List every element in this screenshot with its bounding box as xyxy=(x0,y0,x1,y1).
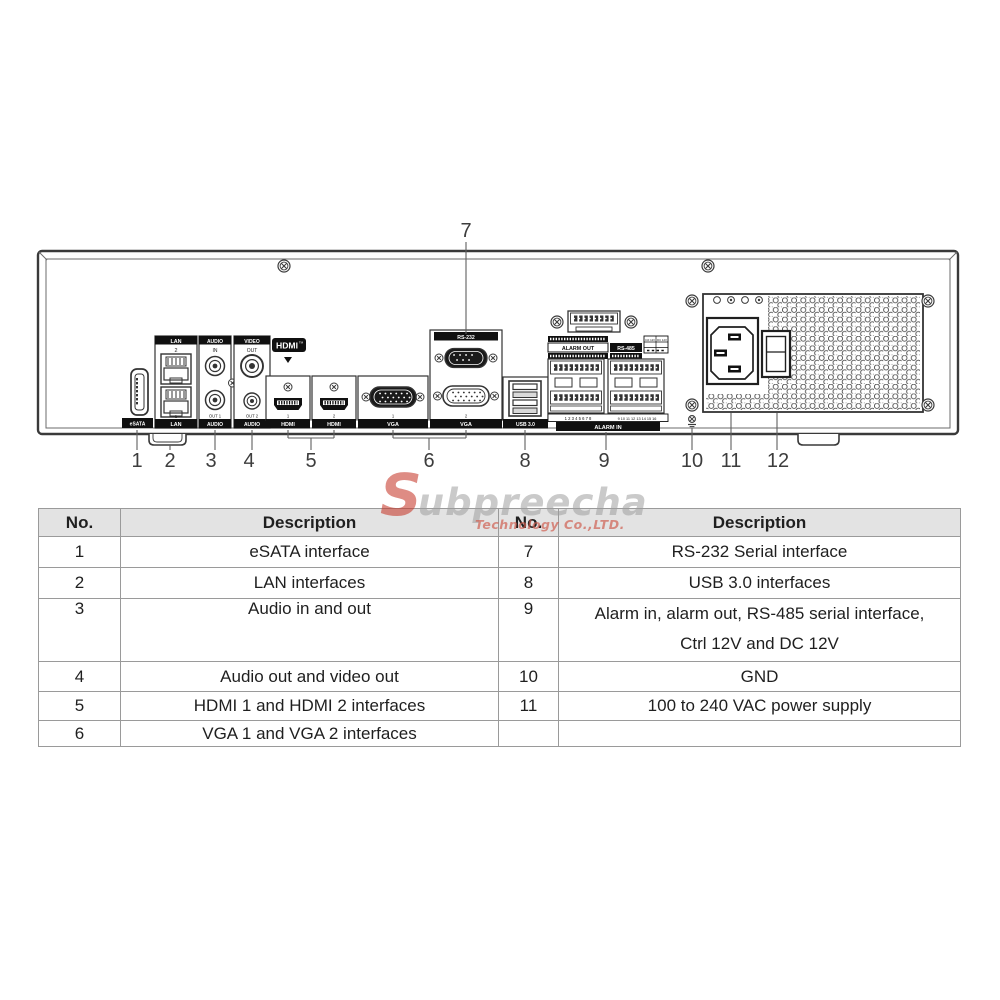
hdmi-logo-tm: TM xyxy=(299,341,304,345)
cell-desc: VGA 1 and VGA 2 interfaces xyxy=(121,721,499,747)
callout-2: 2 xyxy=(164,450,175,472)
rj45-port-2 xyxy=(161,354,191,384)
vga1-port: 1 VGA xyxy=(358,376,428,429)
cell-no xyxy=(499,721,559,747)
cell-desc: Alarm in, alarm out, RS-485 serial inter… xyxy=(559,599,961,662)
rs232-label: RS-232 xyxy=(457,335,475,341)
lan-ports: LAN 2 1 LAN xyxy=(155,336,197,429)
plate-screw-tl-icon xyxy=(686,295,698,307)
cell-desc: eSATA interface xyxy=(121,537,499,568)
gnd-terminal xyxy=(688,416,696,427)
hdmi2-screw-icon xyxy=(330,383,338,391)
audio-ports: AUDIO IN OUT 1 AUDIO xyxy=(199,336,237,429)
power-switch xyxy=(762,331,790,377)
cell-no: 1 xyxy=(39,537,121,568)
vga1-label: VGA xyxy=(387,422,399,428)
callout-10: 10 xyxy=(681,450,703,472)
alarm-in-nums-right: 9 10 11 12 13 14 15 16 xyxy=(618,417,657,421)
audio-out2-rca xyxy=(244,393,260,409)
cell-desc: Audio in and out xyxy=(121,599,499,662)
cell-desc: USB 3.0 interfaces xyxy=(559,568,961,599)
cell-no: 4 xyxy=(39,662,121,692)
table-row: 3 Audio in and out 9 Alarm in, alarm out… xyxy=(39,599,961,662)
alarm-in-nums-left: 1 2 3 4 5 6 7 8 xyxy=(565,416,592,421)
callout-4: 4 xyxy=(243,450,254,472)
audio-out1-label: OUT 1 xyxy=(209,414,222,419)
hdmi-logo-text: HDMI xyxy=(276,341,298,351)
audio-top-label: AUDIO xyxy=(207,339,223,345)
video-out-bnc xyxy=(241,355,263,377)
cell-no: 2 xyxy=(39,568,121,599)
cell-desc: HDMI 1 and HDMI 2 interfaces xyxy=(121,692,499,721)
cell-no: 10 xyxy=(499,662,559,692)
lan-top-label: LAN xyxy=(170,339,181,345)
video-top-label: VIDEO xyxy=(244,339,260,345)
callout-12: 12 xyxy=(767,450,789,472)
callout-3: 3 xyxy=(205,450,216,472)
audio-out-rca xyxy=(206,391,225,410)
rear-panel-diagram: eSATA LAN 2 1 LAN AUDIO IN xyxy=(0,0,1000,480)
hdmi2-label: HDMI xyxy=(327,422,341,428)
alarm-out-terminal xyxy=(568,311,620,332)
ctrl12v-label: Ctrl 12V xyxy=(645,338,655,342)
lan-top-num: 2 xyxy=(175,348,178,354)
callout-11: 11 xyxy=(721,450,742,472)
hdmi1-screw-icon xyxy=(284,383,292,391)
dc12v-label: DC 12V xyxy=(657,338,667,342)
callout-5: 5 xyxy=(305,450,316,472)
hdmi1-port: 1 HDMI xyxy=(266,376,310,429)
rj45-port-1 xyxy=(161,387,191,417)
cell-desc: GND xyxy=(559,662,961,692)
header-desc-right: Description xyxy=(559,509,961,537)
vga1-screw-right-icon xyxy=(416,393,424,401)
audio-in-rca xyxy=(206,357,225,376)
vent-holes-lower xyxy=(706,394,768,410)
video-out2-label: OUT 2 xyxy=(246,414,259,419)
cell-desc xyxy=(559,721,961,747)
cell-no: 5 xyxy=(39,692,121,721)
table-row: 1 eSATA interface 7 RS-232 Serial interf… xyxy=(39,537,961,568)
hdmi2-port: 2 HDMI xyxy=(312,376,356,429)
esata-label: eSATA xyxy=(130,422,146,428)
alarm-in-label: ALARM IN xyxy=(594,425,621,431)
alarm-screw-left-icon xyxy=(551,316,563,328)
vga1-screw-left-icon xyxy=(362,393,370,401)
cell-no: 8 xyxy=(499,568,559,599)
power-inlet xyxy=(707,318,758,384)
callout-1: 1 xyxy=(131,450,142,472)
cell-no: 11 xyxy=(499,692,559,721)
plate-screw-bl-icon xyxy=(686,399,698,411)
cell-desc: Audio out and video out xyxy=(121,662,499,692)
rs485-label: RS-485 xyxy=(617,346,635,352)
callout-9: 9 xyxy=(598,450,609,472)
video-bottom-label: AUDIO xyxy=(244,422,260,428)
table-row: 4 Audio out and video out 10 GND xyxy=(39,662,961,692)
alarm-out-label: ALARM OUT xyxy=(562,346,595,352)
audio-in-label: IN xyxy=(213,348,218,354)
power-area xyxy=(686,294,934,412)
lan-bottom-label: LAN xyxy=(170,422,181,428)
vga2-label: VGA xyxy=(460,422,472,428)
cell-desc: RS-232 Serial interface xyxy=(559,537,961,568)
alarm-in-terminal-a xyxy=(548,359,604,413)
hdmi1-label: HDMI xyxy=(281,422,295,428)
header-desc-left: Description xyxy=(121,509,499,537)
cell-desc: LAN interfaces xyxy=(121,568,499,599)
ctrl-dc-12v-box: Ctrl 12V DC 12V xyxy=(644,336,668,353)
audio-bottom-label: AUDIO xyxy=(207,422,223,428)
chassis-foot-right xyxy=(798,434,839,445)
chassis-foot-left xyxy=(149,434,186,445)
video-ports: VIDEO OUT OUT 2 AUDIO xyxy=(234,336,270,429)
cell-no: 3 xyxy=(39,599,121,662)
usb-label: USB 3.0 xyxy=(516,422,535,428)
cell-no: 9 xyxy=(499,599,559,662)
table-row: 5 HDMI 1 and HDMI 2 interfaces 11 100 to… xyxy=(39,692,961,721)
table-header-row: No. Description No. Description xyxy=(39,509,961,537)
cell-desc: 100 to 240 VAC power supply xyxy=(559,692,961,721)
alarm-in-terminal-b xyxy=(608,359,664,413)
table-row: 6 VGA 1 and VGA 2 interfaces xyxy=(39,721,961,747)
callout-8: 8 xyxy=(519,450,530,472)
cell-no: 6 xyxy=(39,721,121,747)
rs232-vga2-block: RS-232 2 VGA xyxy=(430,330,502,429)
chassis-screw-left-icon xyxy=(278,260,290,272)
plate-screw-tr-icon xyxy=(922,295,934,307)
description-table: No. Description No. Description 1 eSATA … xyxy=(38,508,961,747)
plate-screw-br-icon xyxy=(922,399,934,411)
header-no-left: No. xyxy=(39,509,121,537)
cell-no: 7 xyxy=(499,537,559,568)
table-row: 2 LAN interfaces 8 USB 3.0 interfaces xyxy=(39,568,961,599)
callout-6: 6 xyxy=(423,450,434,472)
alarm-screw-right-icon xyxy=(625,316,637,328)
usb-ports: USB 3.0 xyxy=(503,377,548,429)
callout-7: 7 xyxy=(460,220,471,242)
chassis-screw-right-icon xyxy=(702,260,714,272)
nvr-rear-panel-page: eSATA LAN 2 1 LAN AUDIO IN xyxy=(0,0,1000,1000)
header-no-right: No. xyxy=(499,509,559,537)
video-out-label: OUT xyxy=(247,348,258,354)
